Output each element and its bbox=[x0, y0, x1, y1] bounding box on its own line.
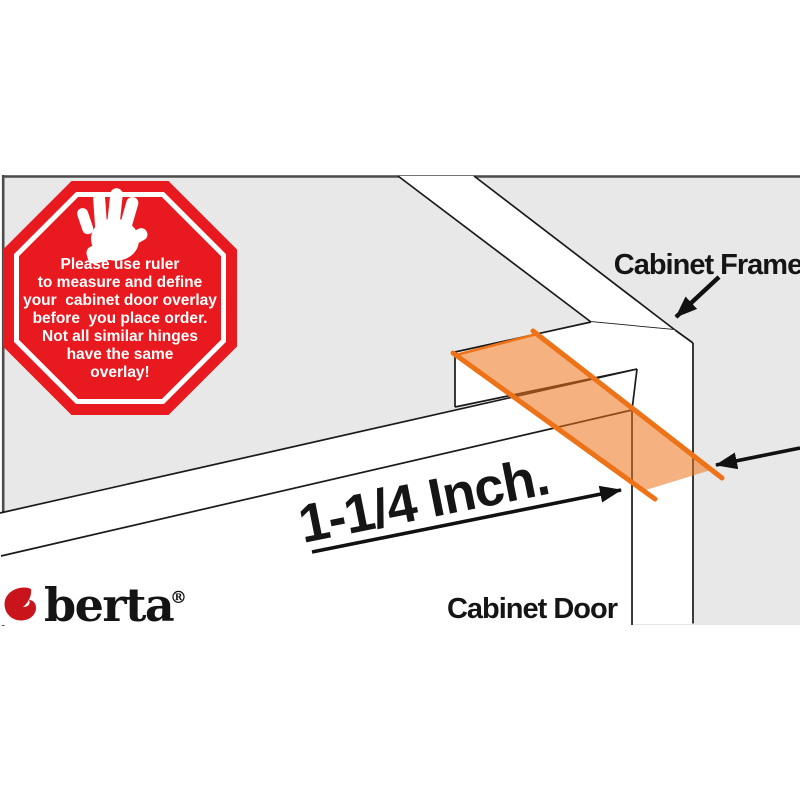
cabinet-overlay-diagram: Cabinet Frame Cabinet Door 1-1/4 Inch. P… bbox=[0, 0, 800, 800]
registered-mark: ® bbox=[170, 588, 187, 608]
stop-line: have the same bbox=[67, 346, 174, 363]
stop-line: Not all similar hinges bbox=[42, 328, 198, 345]
stop-sign: Please use ruler to measure and define y… bbox=[3, 181, 237, 415]
stop-line: overlay! bbox=[90, 364, 149, 381]
brand-name: berta bbox=[44, 578, 174, 632]
stop-line: to measure and define bbox=[38, 274, 203, 291]
stop-line: before you place order. bbox=[33, 310, 208, 327]
product-diagram: Cabinet Frame Cabinet Door 1-1/4 Inch. P… bbox=[0, 0, 800, 800]
cabinet-door-label: Cabinet Door bbox=[447, 593, 618, 625]
stop-line: your cabinet door overlay bbox=[23, 292, 217, 309]
cabinet-frame-label: Cabinet Frame bbox=[614, 249, 800, 281]
stop-line: Please use ruler bbox=[61, 256, 180, 273]
